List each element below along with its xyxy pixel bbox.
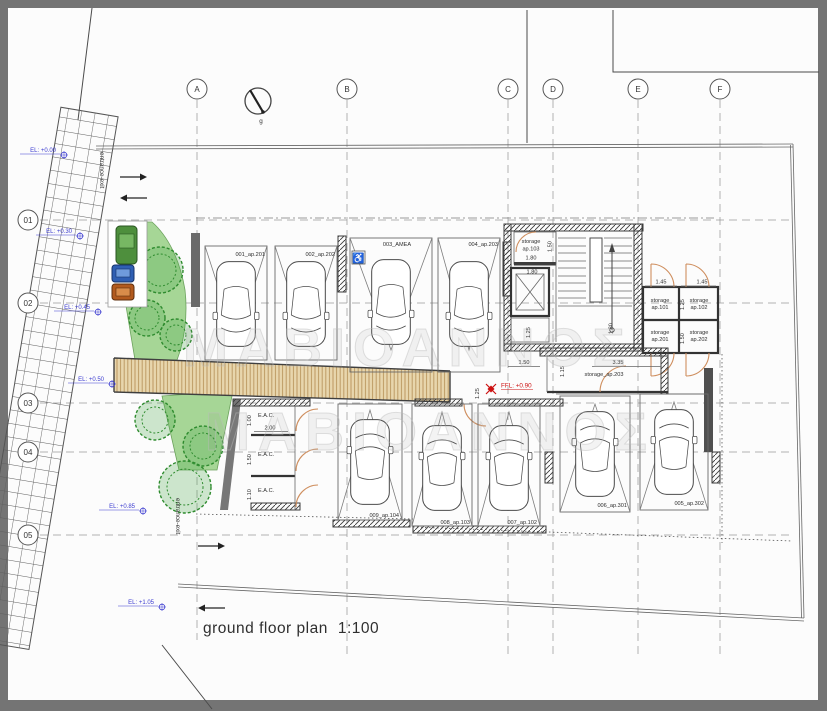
grid-label: 01 <box>24 216 33 225</box>
parking-label: 009_ap.104 <box>369 513 399 519</box>
spot-level-label: EL: +0.00 <box>30 148 57 154</box>
grid-bubble-E: E <box>628 79 648 99</box>
orange-vehicle-icon <box>112 284 134 300</box>
grid-bubble-D: D <box>543 79 563 99</box>
grid-label: A <box>194 85 200 94</box>
spot-level-label: EL: +0.85 <box>109 504 136 510</box>
dimension: 1.80 <box>527 270 538 276</box>
grid-label: 05 <box>24 531 33 540</box>
room-label: ap.202 <box>690 337 707 343</box>
retaining-wall <box>191 233 200 307</box>
grid-bubble-B: B <box>337 79 357 99</box>
dimension: 1.25 <box>475 388 481 399</box>
dimension: 1.50 <box>548 241 554 252</box>
car-top-view <box>651 410 697 495</box>
watermark-text: ΜΑΒΙΟΑΝΝΟΣ <box>205 402 655 462</box>
dimension: 1.25 <box>680 299 686 310</box>
grid-label: 02 <box>24 299 33 308</box>
grid-label: E <box>635 85 640 94</box>
ffl-label: FFL: +0.90 <box>501 383 532 390</box>
parking-label: 001_ap.201 <box>235 252 265 258</box>
watermark-text: ΜΑΒΙΟΑΝΝΟΣ <box>183 318 633 378</box>
grid-label: 03 <box>24 399 33 408</box>
room-label: ap.102 <box>690 305 707 311</box>
parking-label: 003_AMEA <box>383 242 412 248</box>
floor-plan-drawing: A B C D E F 01 02 03 04 05 g entrance-ex… <box>0 0 827 711</box>
grid-bubble-03: 03 <box>18 393 38 413</box>
room-label: ap.103 <box>522 247 539 253</box>
room-label: storage <box>522 239 541 245</box>
parking-label: 002_ap.202 <box>305 252 335 258</box>
room-label: ap.201 <box>651 337 668 343</box>
room-label: ap.101 <box>651 305 668 311</box>
dimension: 1.50 <box>680 333 686 344</box>
grid-label: 04 <box>24 448 33 457</box>
dimension: 1.45 <box>656 280 667 286</box>
plan-caption-title: ground floor plan <box>203 620 328 637</box>
entry-parking-nook <box>108 221 147 307</box>
north-label: g <box>259 118 263 125</box>
tree <box>159 461 211 513</box>
dimension: 1.45 <box>697 280 708 286</box>
blue-vehicle-icon <box>112 265 134 282</box>
grid-label: F <box>718 85 723 94</box>
grid-bubble-04: 04 <box>18 442 38 462</box>
room-label: storage <box>690 330 709 336</box>
room-label: storage <box>690 298 709 304</box>
parking-label: 008_ap.103 <box>440 520 470 526</box>
room-label: E.A.C. <box>258 488 275 494</box>
grid-bubble-A: A <box>187 79 207 99</box>
east-wall <box>704 368 713 452</box>
entrance-exit-label: entrance-exit <box>98 152 105 189</box>
spot-level-label: EL: +1.05 <box>128 600 155 606</box>
parking-label: 007_ap.102 <box>507 520 537 526</box>
grid-bubble-F: F <box>710 79 730 99</box>
wheelchair-icon: ♿ <box>352 251 365 265</box>
green-vehicle-icon <box>116 226 137 264</box>
room-label: storage <box>651 330 670 336</box>
grid-bubble-01: 01 <box>18 210 38 230</box>
grid-bubble-05: 05 <box>18 525 38 545</box>
grid-bubble-C: C <box>498 79 518 99</box>
spot-level-label: EL: +0.50 <box>78 377 105 383</box>
entrance-exit-label: entrance-exit <box>174 498 181 535</box>
grid-label: C <box>505 85 511 94</box>
tree <box>135 400 175 440</box>
plan-caption: ground floor plan1:100 <box>203 620 379 637</box>
room-label: storage <box>651 298 670 304</box>
dimension: 1.10 <box>247 489 253 500</box>
grid-label: B <box>344 85 349 94</box>
parking-label: 006_ap.301 <box>597 503 627 509</box>
spot-level-label: EL: +0.30 <box>46 229 73 235</box>
grid-label: D <box>550 85 556 94</box>
dimension: 1.80 <box>526 256 537 262</box>
floor-plan-screenshot: A B C D E F 01 02 03 04 05 g entrance-ex… <box>0 0 827 711</box>
wheelchair-glyph: ♿ <box>352 252 364 265</box>
grid-bubble-02: 02 <box>18 293 38 313</box>
parking-label: 004_ap.203 <box>468 242 498 248</box>
plan-caption-scale: 1:100 <box>338 620 379 637</box>
parking-label: 005_ap.302 <box>674 501 704 507</box>
spot-level-label: EL: +0.45 <box>64 305 91 311</box>
